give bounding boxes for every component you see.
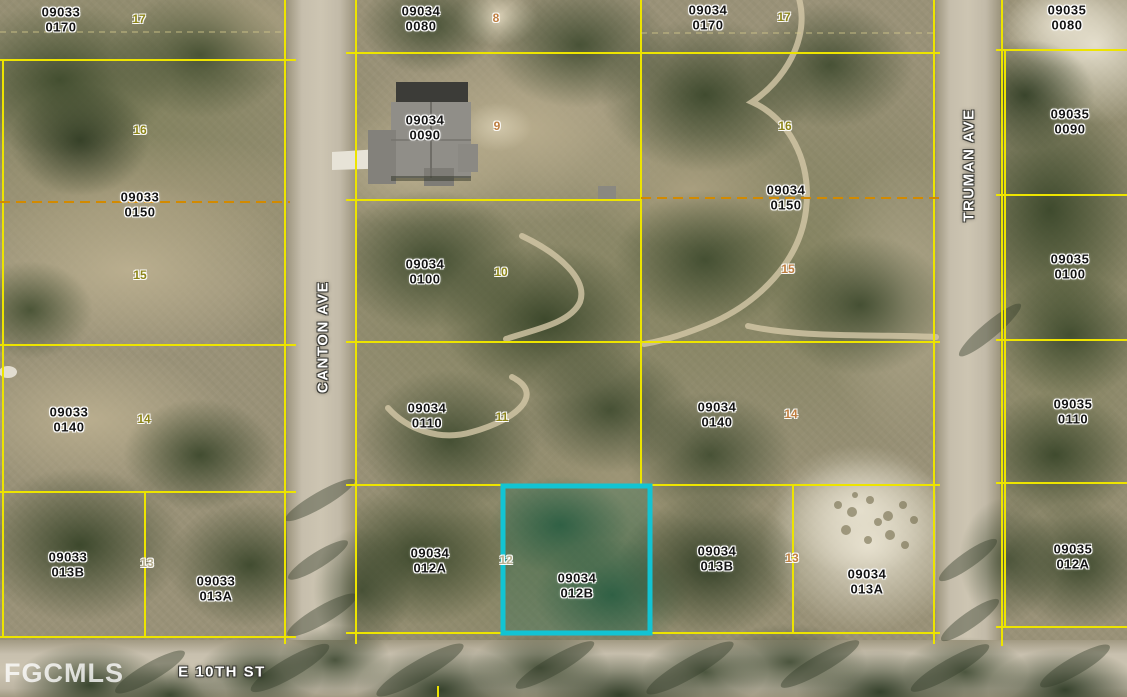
lot-number: 15 <box>781 262 794 276</box>
street-label-canton-ave: CANTON AVE <box>315 281 332 393</box>
parcel-label: 090340080 <box>402 4 441 33</box>
parcel-lot: 0150 <box>121 205 160 220</box>
parcel-book: 09034 <box>558 571 597 586</box>
lot-number: 11 <box>496 410 509 424</box>
parcel-label: 090350110 <box>1054 397 1093 426</box>
lot-number: 9 <box>494 119 501 133</box>
parcel-lot: 0170 <box>689 18 728 33</box>
parcel-book: 09033 <box>121 190 160 205</box>
fgcmls-watermark: FGCMLS <box>4 658 124 689</box>
parcel-book: 09034 <box>406 113 445 128</box>
parcel-lot: 012A <box>1054 557 1093 572</box>
parcel-label: 09034013B <box>698 544 737 573</box>
parcel-lot: 0080 <box>402 19 441 34</box>
parcel-label: 090340170 <box>689 3 728 32</box>
parcel-lot: 0150 <box>767 198 806 213</box>
parcel-book: 09034 <box>402 4 441 19</box>
parcel-book: 09035 <box>1054 542 1093 557</box>
parcel-label: 090340100 <box>406 257 445 286</box>
shed <box>598 186 616 200</box>
parcel-label: 090350080 <box>1048 3 1087 32</box>
parcel-lot: 0140 <box>50 420 89 435</box>
parcel-book: 09033 <box>197 574 236 589</box>
lot-number: 17 <box>132 12 145 26</box>
lot-number: 14 <box>784 407 797 421</box>
parcel-book: 09034 <box>698 544 737 559</box>
lot-number: 12 <box>499 553 512 567</box>
parcel-lot: 0170 <box>42 20 81 35</box>
parcel-label: 090330150 <box>121 190 160 219</box>
street-label-e-10th-st: E 10TH ST <box>178 664 266 681</box>
sand-debris <box>834 492 918 549</box>
parcel-book: 09034 <box>848 567 887 582</box>
parcel-book: 09033 <box>49 550 88 565</box>
parcel-label: 090330140 <box>50 405 89 434</box>
lot-number: 10 <box>494 265 507 279</box>
parcel-label: 09035012A <box>1054 542 1093 571</box>
parcel-label: 090340110 <box>408 401 447 430</box>
parcel-lot: 0140 <box>698 415 737 430</box>
parcel-book: 09035 <box>1051 252 1090 267</box>
parcel-lot: 0100 <box>406 272 445 287</box>
driveway <box>0 148 398 378</box>
lot-number: 8 <box>493 11 500 25</box>
parcel-label: 09033013A <box>197 574 236 603</box>
parcel-book: 09035 <box>1051 107 1090 122</box>
parcel-label: 09034013A <box>848 567 887 596</box>
parcel-lot: 013A <box>848 582 887 597</box>
parcel-book: 09035 <box>1048 3 1087 18</box>
parcel-lot: 0110 <box>408 416 447 431</box>
aerial-parcel-map: 090330170 090330150 090330140 09033013B … <box>0 0 1127 697</box>
parcel-label: 090350090 <box>1051 107 1090 136</box>
parcel-label: 09033013B <box>49 550 88 579</box>
parcel-book: 09033 <box>50 405 89 420</box>
lot-number: 13 <box>785 551 798 565</box>
parcel-lot: 013B <box>698 559 737 574</box>
street-label-truman-ave: TRUMAN AVE <box>961 108 978 221</box>
lot-number: 17 <box>777 10 790 24</box>
parcel-book: 09035 <box>1054 397 1093 412</box>
dirt-trails <box>388 0 936 435</box>
lot-number: 14 <box>137 412 150 426</box>
parcel-label-highlighted: 09034012B <box>558 571 597 600</box>
parcel-lot: 0090 <box>406 128 445 143</box>
parcel-lot: 013A <box>197 589 236 604</box>
parcel-book: 09034 <box>408 401 447 416</box>
parcel-label: 090330170 <box>42 5 81 34</box>
parcel-label: 09034012A <box>411 546 450 575</box>
parcel-lot: 0090 <box>1051 122 1090 137</box>
parcel-book: 09034 <box>698 400 737 415</box>
parcel-book: 09034 <box>767 183 806 198</box>
parcel-book: 09034 <box>406 257 445 272</box>
parcel-lot: 0100 <box>1051 267 1090 282</box>
lot-number: 16 <box>133 123 146 137</box>
lot-number: 16 <box>778 119 791 133</box>
parcel-label: 090340090 <box>406 113 445 142</box>
parcel-lot: 0110 <box>1054 412 1093 427</box>
highlighted-parcel-outline <box>503 486 650 633</box>
lot-number: 15 <box>133 268 146 282</box>
parcel-lot: 0080 <box>1048 18 1087 33</box>
parcel-lot: 012B <box>558 586 597 601</box>
parcel-book: 09033 <box>42 5 81 20</box>
parcel-book: 09034 <box>689 3 728 18</box>
parcel-label: 090350100 <box>1051 252 1090 281</box>
parcel-book: 09034 <box>411 546 450 561</box>
parcel-lot: 013B <box>49 565 88 580</box>
parcel-label: 090340140 <box>698 400 737 429</box>
parcel-lot: 012A <box>411 561 450 576</box>
parcel-label: 090340150 <box>767 183 806 212</box>
lot-number: 13 <box>140 556 153 570</box>
